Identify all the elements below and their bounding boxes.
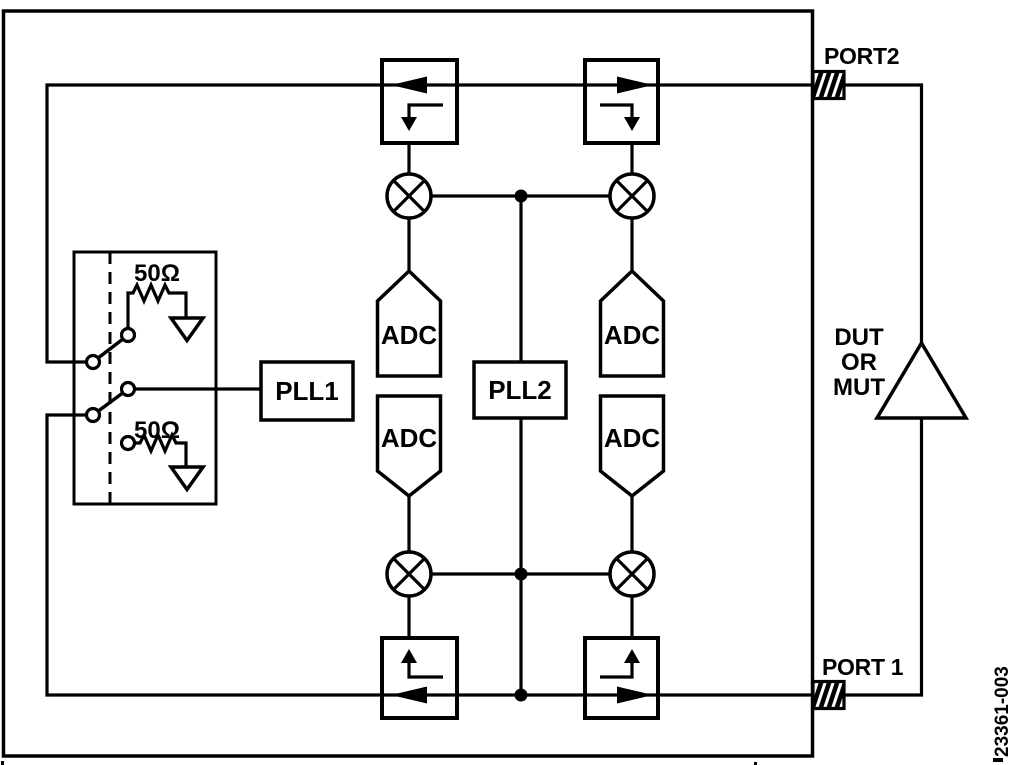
mixer-icon-bottom-right (610, 552, 654, 596)
termination-bottom-label: 50Ω (134, 417, 180, 444)
directional-coupler-bottom-right (585, 638, 658, 718)
junction-dot (515, 190, 528, 203)
mixer-icon-top-left (387, 174, 431, 218)
directional-coupler-bottom-left (382, 638, 457, 718)
bottom-through-wire (47, 415, 922, 695)
dut-label-line3: MUT (833, 374, 885, 401)
adc-block-bottom-right: ADC (601, 396, 664, 496)
page-crop-artifact (1, 761, 4, 765)
adc-block-top-left: ADC (378, 271, 441, 376)
port1-connector (812, 680, 846, 710)
junction-dot (515, 689, 528, 702)
switch-pole-contact (87, 409, 100, 422)
dut-amplifier: DUT OR MUT (833, 324, 966, 418)
right-arrow-icon (617, 77, 653, 94)
left-arrow-icon (391, 687, 427, 704)
mixer-icon-bottom-left (387, 552, 431, 596)
directional-coupler-top-left (382, 60, 457, 143)
switch-pole-contact (87, 356, 100, 369)
pll2-block: PLL2 (474, 362, 566, 418)
pll2-label: PLL2 (488, 375, 552, 405)
switch-throw-contact (122, 329, 135, 342)
pll1-block: PLL1 (261, 362, 353, 420)
adc-label: ADC (381, 423, 438, 453)
directional-coupler-top-right (585, 60, 658, 143)
pll1-label: PLL1 (275, 376, 339, 406)
left-arrow-icon (391, 77, 427, 94)
down-arrow-icon (624, 117, 640, 131)
termination-top-label: 50Ω (134, 260, 180, 287)
junction-dot (515, 568, 528, 581)
ground-icon (171, 318, 203, 341)
page-crop-artifact (993, 758, 1003, 762)
figure-code: 23361-003 (992, 666, 1013, 757)
amplifier-triangle-icon (877, 343, 966, 418)
up-arrow-icon (401, 649, 417, 663)
adc-block-top-right: ADC (601, 271, 664, 376)
mixer-icon-top-right (610, 174, 654, 218)
vna-block-diagram: ADC ADC ADC ADC PLL1 PLL2 50Ω 50Ω (0, 0, 1024, 765)
port2-label: PORT2 (824, 43, 899, 69)
port1-label: PORT 1 (822, 654, 904, 680)
right-arrow-icon (617, 687, 653, 704)
reference-switch-block: 50Ω 50Ω (74, 252, 216, 504)
ground-icon (171, 467, 203, 490)
adc-label: ADC (604, 320, 661, 350)
dut-label-line2: OR (841, 349, 877, 376)
adc-block-bottom-left: ADC (378, 396, 441, 496)
diagram-canvas: ADC ADC ADC ADC PLL1 PLL2 50Ω 50Ω (0, 0, 1024, 765)
adc-label: ADC (604, 423, 661, 453)
dut-label-line1: DUT (834, 324, 884, 351)
switch-throw-contact (122, 383, 135, 396)
switch-throw-contact (122, 437, 135, 450)
adc-label: ADC (381, 320, 438, 350)
down-arrow-icon (401, 117, 417, 131)
port2-connector (812, 70, 846, 100)
up-arrow-icon (624, 649, 640, 663)
